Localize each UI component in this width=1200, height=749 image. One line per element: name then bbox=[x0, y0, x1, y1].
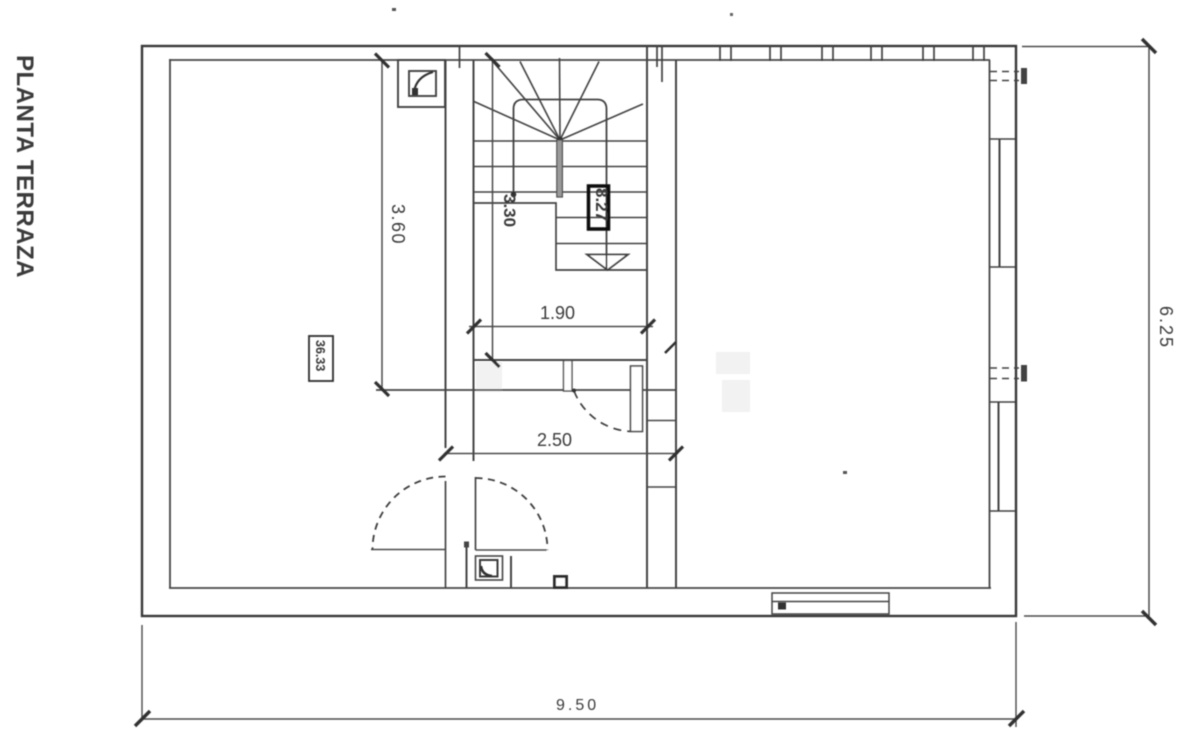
svg-text:8.27: 8.27 bbox=[592, 188, 611, 221]
svg-text:2.50: 2.50 bbox=[537, 430, 572, 450]
svg-text:PLANTA TERRAZA: PLANTA TERRAZA bbox=[11, 55, 38, 278]
svg-text:9.50: 9.50 bbox=[556, 697, 599, 714]
svg-text:3.60: 3.60 bbox=[388, 204, 408, 245]
svg-text:36.33: 36.33 bbox=[313, 340, 327, 371]
svg-text:6.25: 6.25 bbox=[1156, 306, 1176, 349]
svg-text:1.90: 1.90 bbox=[540, 303, 575, 323]
svg-text:3.30: 3.30 bbox=[500, 194, 519, 227]
